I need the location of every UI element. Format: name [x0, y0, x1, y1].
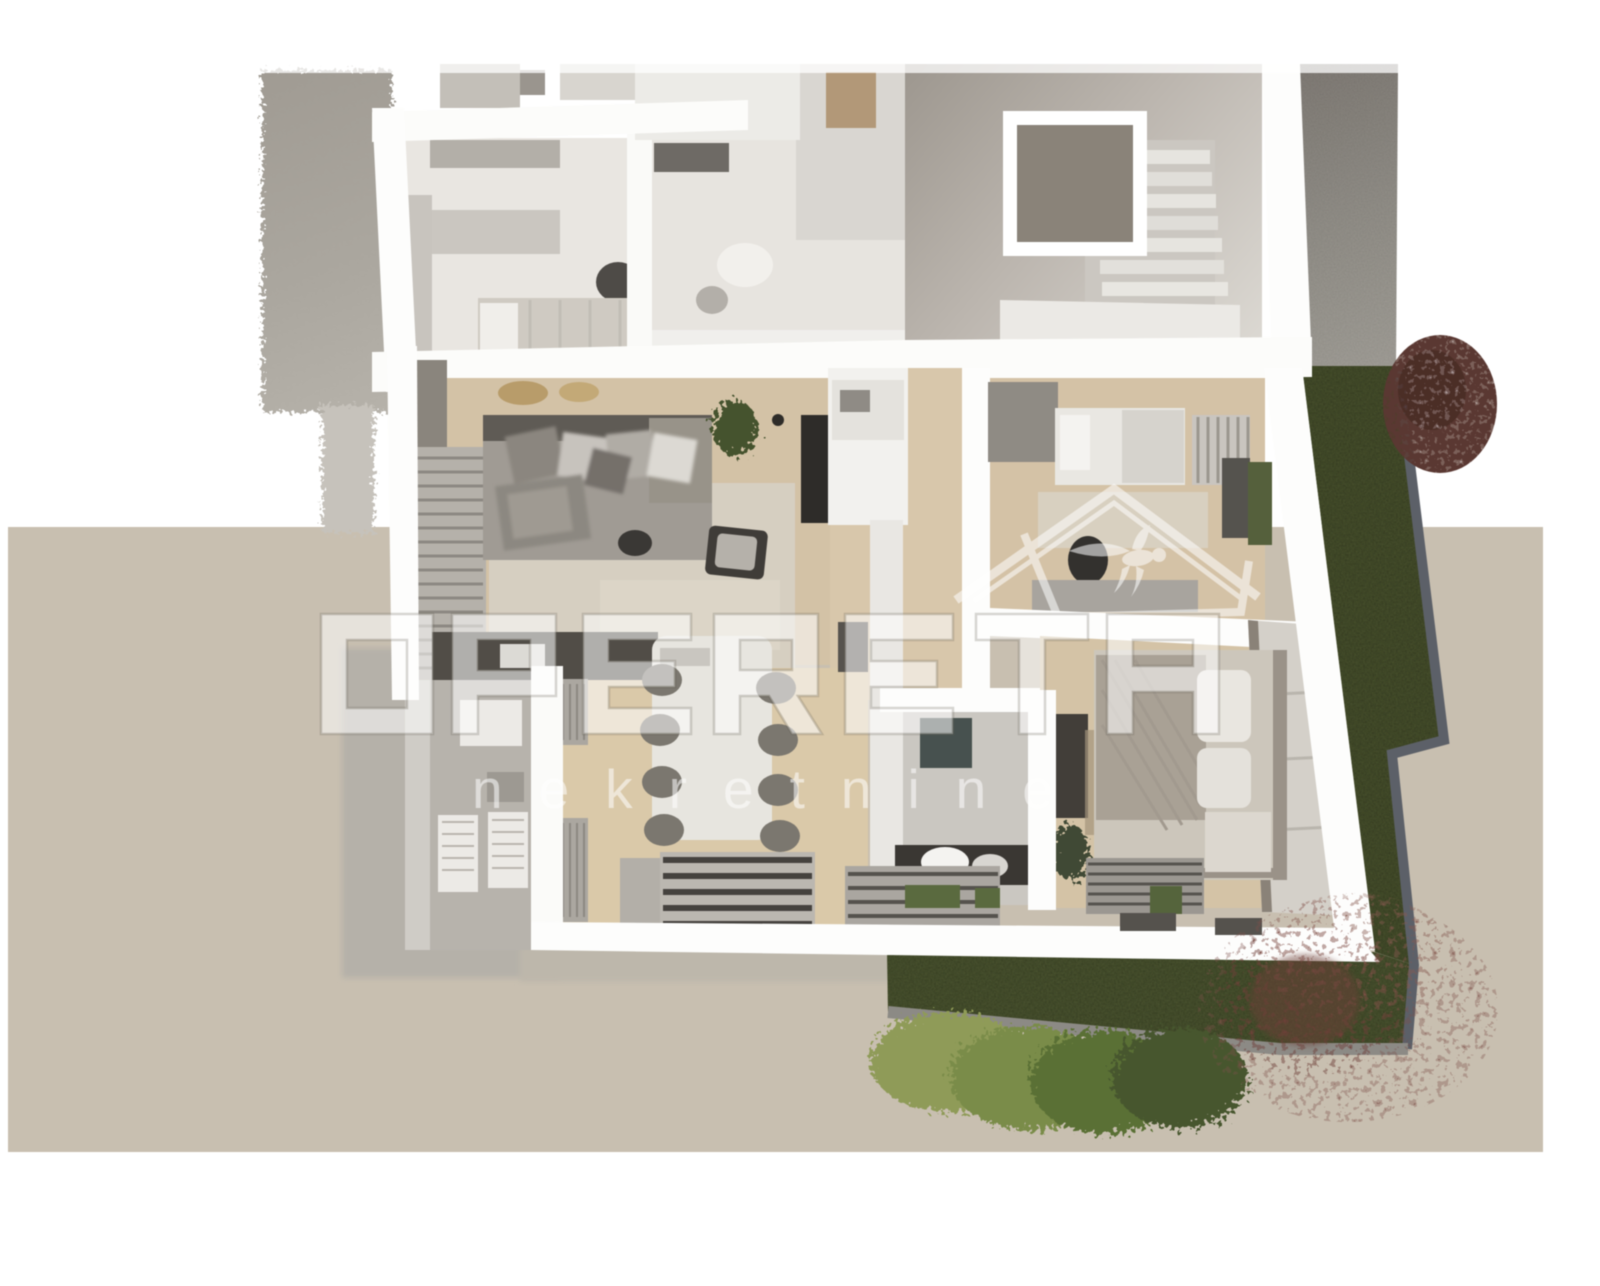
- svg-text:nekretnine: nekretnine: [472, 758, 1089, 820]
